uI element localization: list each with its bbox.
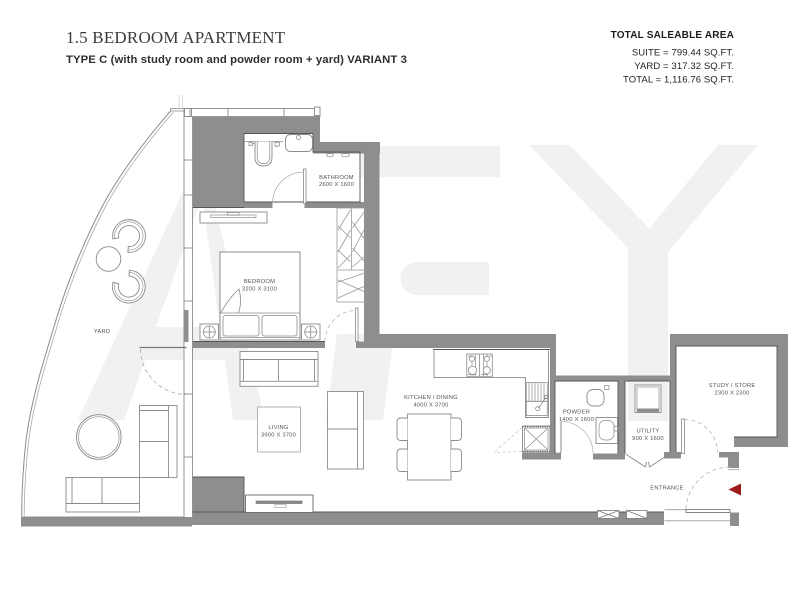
svg-text:2600 X 1600: 2600 X 1600 xyxy=(319,182,354,188)
svg-text:4000 X 3700: 4000 X 3700 xyxy=(413,403,448,409)
svg-text:900 X 1600: 900 X 1600 xyxy=(632,436,664,442)
svg-text:BEDROOM: BEDROOM xyxy=(244,279,275,285)
svg-text:LIVING: LIVING xyxy=(268,425,288,431)
svg-text:ENTRANCE: ENTRANCE xyxy=(650,486,684,492)
svg-text:TOTAL = 1,116.76 SQ.FT.: TOTAL = 1,116.76 SQ.FT. xyxy=(623,75,734,86)
svg-text:POWDER: POWDER xyxy=(563,410,590,416)
svg-text:YARD: YARD xyxy=(94,329,110,335)
svg-text:TYPE C (with study room and po: TYPE C (with study room and powder room … xyxy=(66,54,407,66)
svg-text:2300 X 2300: 2300 X 2300 xyxy=(714,391,749,397)
svg-text:3200 X 3100: 3200 X 3100 xyxy=(242,287,277,293)
svg-text:TOTAL SALEABLE AREA: TOTAL SALEABLE AREA xyxy=(611,30,734,41)
svg-text:1.5 BEDROOM APARTMENT: 1.5 BEDROOM APARTMENT xyxy=(66,28,286,47)
svg-text:STUDY / STORE: STUDY / STORE xyxy=(709,383,756,389)
svg-text:YARD = 317.32 SQ.FT.: YARD = 317.32 SQ.FT. xyxy=(634,61,734,72)
svg-text:BATHROOM: BATHROOM xyxy=(319,175,354,181)
svg-text:1400 X 1600: 1400 X 1600 xyxy=(559,417,594,423)
svg-text:UTILITY: UTILITY xyxy=(637,429,660,435)
svg-text:3900 X 3700: 3900 X 3700 xyxy=(261,433,296,439)
svg-text:KITCHEN / DINING: KITCHEN / DINING xyxy=(404,395,458,401)
svg-text:SUITE = 799.44 SQ.FT.: SUITE = 799.44 SQ.FT. xyxy=(632,48,734,59)
